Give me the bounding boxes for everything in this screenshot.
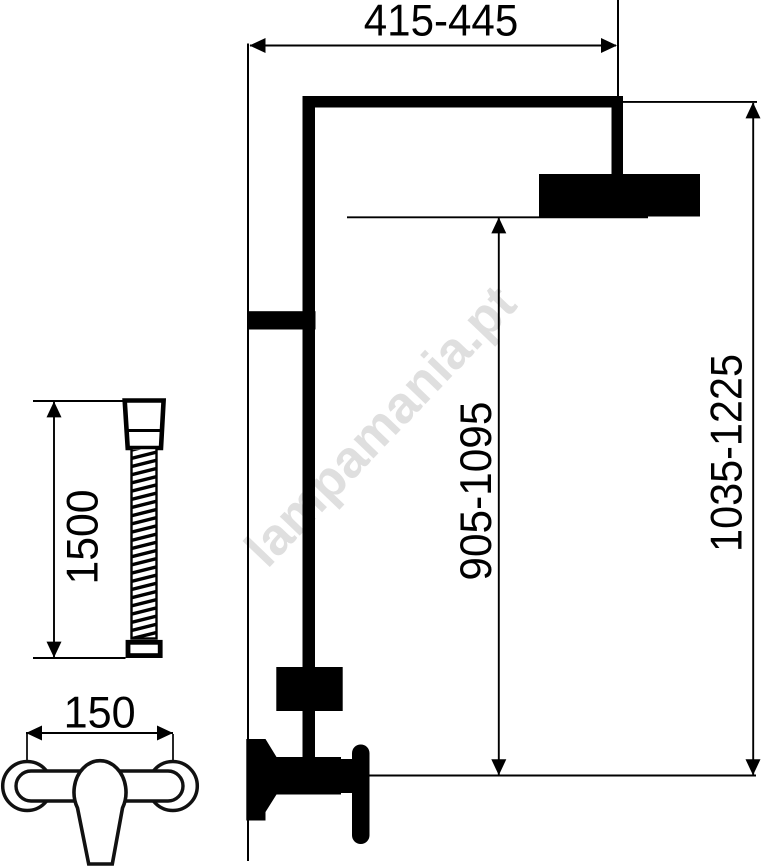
svg-text:415-445: 415-445 [364, 0, 519, 45]
svg-text:1035-1225: 1035-1225 [703, 354, 752, 552]
svg-text:150: 150 [64, 689, 136, 738]
svg-text:1500: 1500 [59, 490, 108, 585]
svg-text:905-1095: 905-1095 [452, 402, 501, 581]
